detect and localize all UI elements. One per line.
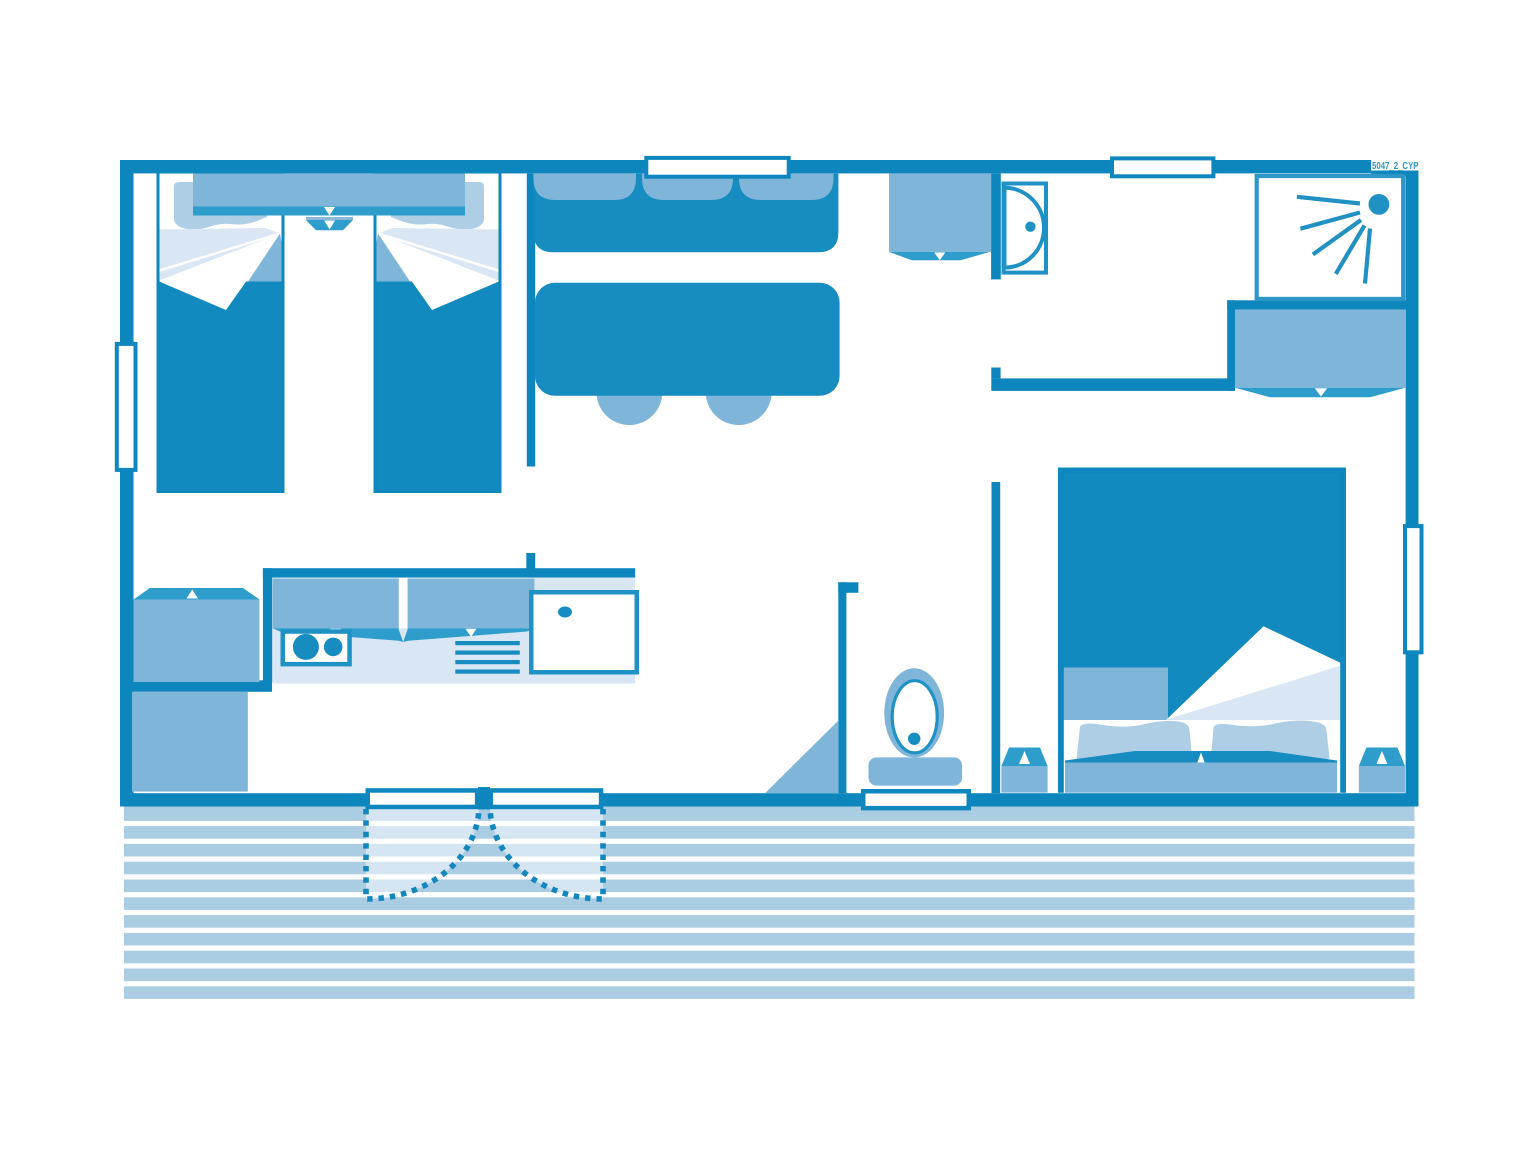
svg-text:5047_2_CYP: 5047_2_CYP (1372, 161, 1419, 172)
